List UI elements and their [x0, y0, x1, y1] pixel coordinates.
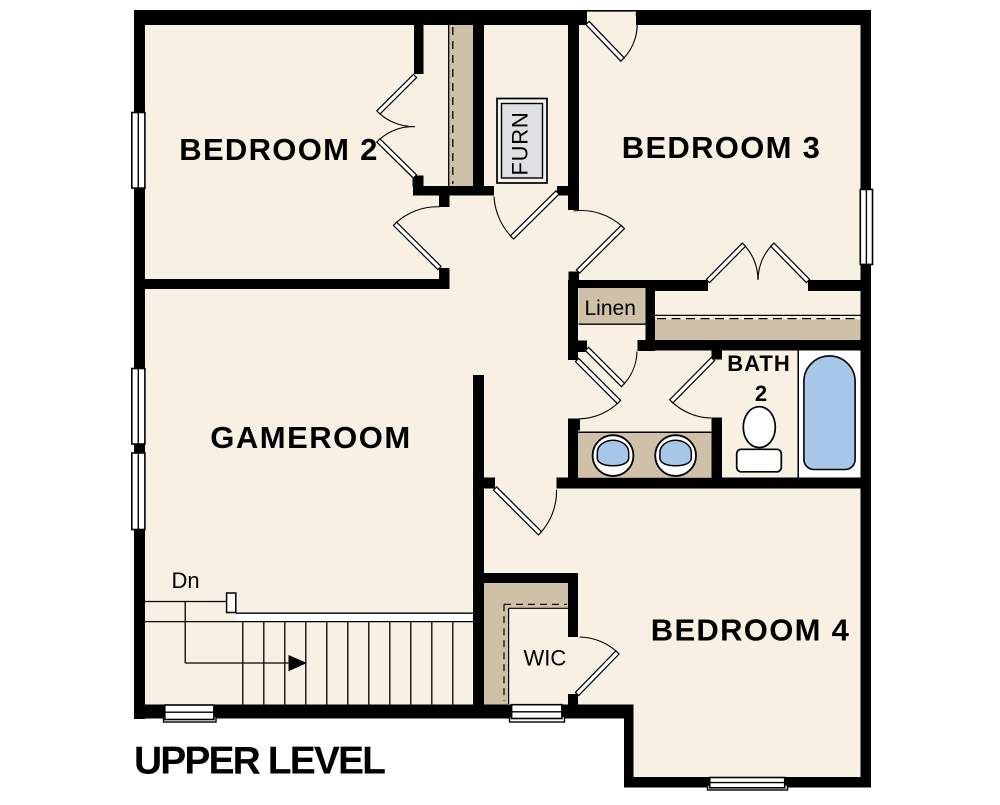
- svg-text:UPPER LEVEL: UPPER LEVEL: [134, 739, 385, 782]
- svg-text:Linen: Linen: [585, 297, 636, 320]
- svg-text:BEDROOM 2: BEDROOM 2: [179, 132, 378, 167]
- svg-text:WIC: WIC: [524, 645, 567, 670]
- svg-text:Dn: Dn: [172, 568, 200, 593]
- svg-text:FURN: FURN: [508, 112, 533, 176]
- svg-text:GAMEROOM: GAMEROOM: [210, 420, 411, 455]
- svg-text:BEDROOM 3: BEDROOM 3: [622, 130, 821, 165]
- svg-text:2: 2: [755, 381, 767, 406]
- svg-text:BATH: BATH: [727, 351, 790, 376]
- svg-text:BEDROOM 4: BEDROOM 4: [651, 613, 850, 648]
